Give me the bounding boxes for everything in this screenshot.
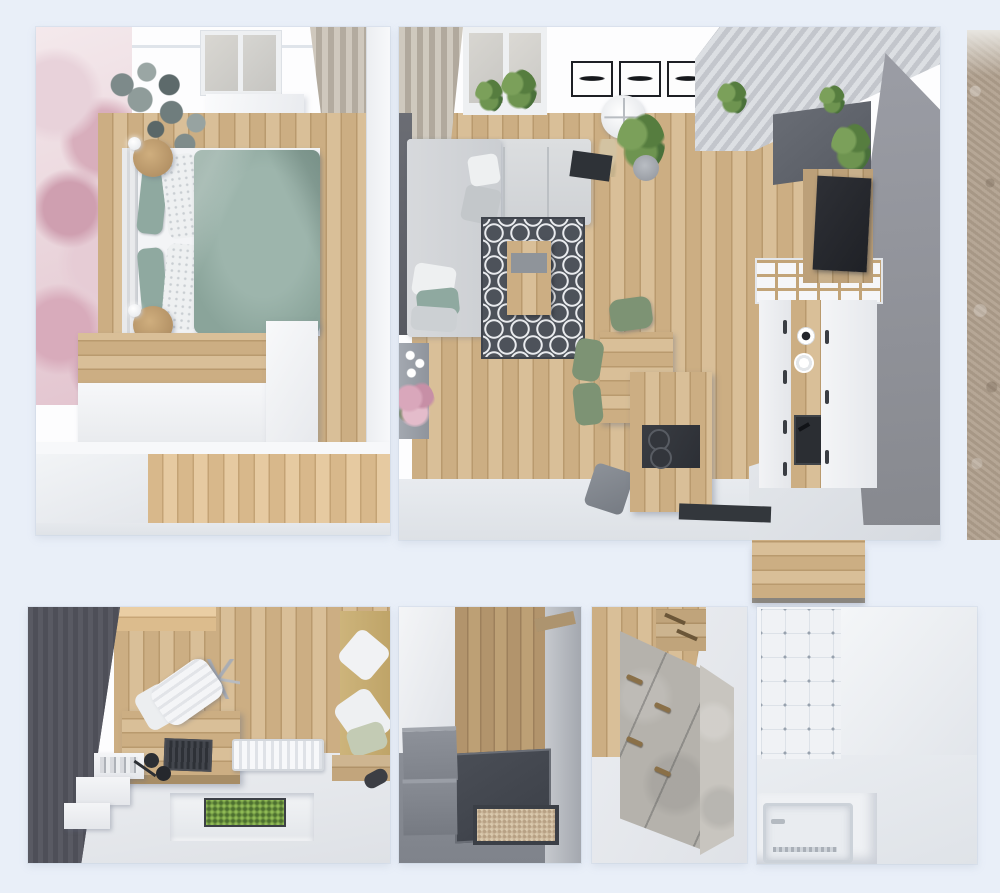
bedroom-panel <box>36 27 390 535</box>
white-desk <box>78 383 270 444</box>
wardrobe <box>366 27 390 442</box>
table-tray <box>511 253 547 273</box>
drain-grate <box>773 847 837 852</box>
beige-doormat <box>473 805 559 845</box>
framed-print <box>571 61 613 97</box>
tv-screen <box>813 176 872 273</box>
cooktop <box>642 425 700 468</box>
dresser-nook-panel <box>592 607 747 863</box>
white-kitchen-cabinet <box>821 300 877 488</box>
entry-mat <box>679 503 772 522</box>
plate-stack <box>794 353 814 373</box>
framed-prints-row <box>571 61 707 97</box>
green-dining-chair <box>572 382 604 427</box>
cushion-seam <box>547 147 549 217</box>
plant-pot <box>633 155 659 181</box>
ball-lamp <box>128 304 141 317</box>
desk-lamp-shade <box>144 753 159 768</box>
kitchen-peninsula-counter <box>752 540 865 598</box>
laptop <box>163 738 212 772</box>
dark-doormat <box>569 150 612 181</box>
home-office-panel <box>28 607 390 863</box>
throw-pillow <box>467 153 501 187</box>
cushion-seam <box>503 147 505 217</box>
plate-stack <box>797 327 815 345</box>
wall-planter <box>819 85 845 115</box>
cabinet-top-plant <box>717 81 747 115</box>
desk-lamp-base <box>156 766 171 781</box>
framed-print <box>619 61 661 97</box>
corridor-wood-floor <box>148 454 390 527</box>
corridor-floor-edge <box>36 523 390 535</box>
gray-storage-cabinet <box>402 726 458 782</box>
wall-shelf-box <box>76 777 130 805</box>
sage-duvet <box>194 150 320 334</box>
tub-faucet <box>771 819 785 824</box>
planter-greenery <box>204 798 286 827</box>
ball-lamp <box>128 137 141 150</box>
stone-texture-strip <box>967 30 1000 540</box>
white-partition <box>266 321 318 442</box>
wood-dresser <box>78 333 270 383</box>
mosaic-tile-wall <box>761 609 841 759</box>
kitchen-sink <box>794 415 824 465</box>
wall-shelf-box <box>64 803 110 829</box>
wall-planter <box>831 123 871 173</box>
white-kitchen-cabinet <box>759 300 792 488</box>
sill-plant <box>501 69 537 111</box>
wall-divider <box>36 442 390 454</box>
green-dining-chair <box>608 295 654 333</box>
living-room-kitchen-panel <box>399 27 940 540</box>
radiator <box>232 739 324 771</box>
concrete-dresser-side <box>700 665 734 855</box>
apartment-render-collage <box>0 0 1000 893</box>
bathtub <box>763 803 853 863</box>
throw-pillow <box>410 305 458 332</box>
books <box>100 757 138 773</box>
console-lights <box>403 349 427 381</box>
sill-plant <box>475 79 503 113</box>
hall-wood-floor <box>455 607 547 757</box>
entry-hallway-panel <box>399 607 581 863</box>
bathroom-panel <box>757 607 977 864</box>
gray-storage-cabinet <box>403 779 458 836</box>
window-pane <box>243 35 276 91</box>
